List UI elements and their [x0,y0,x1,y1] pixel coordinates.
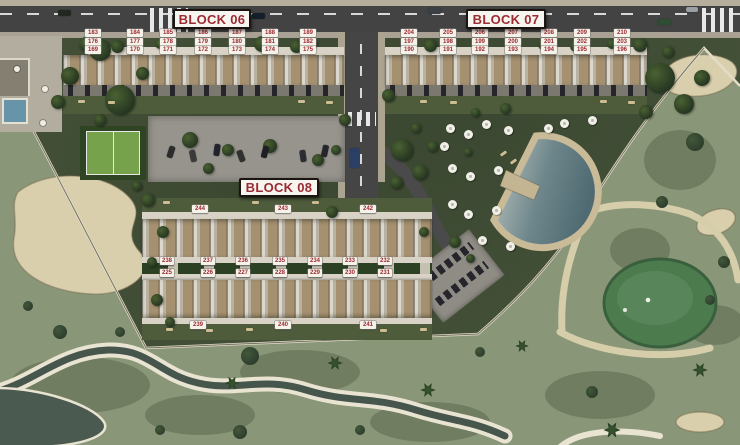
unit-label: 176 [85,38,101,46]
tree [147,257,157,267]
unit-label: 238 [160,257,174,265]
unit-label: 197 [401,38,417,46]
tree [222,144,234,156]
tree [475,347,485,357]
unit-label: 204 [401,29,417,37]
unit-label: 196 [614,46,630,54]
sun-lounger [628,101,635,104]
tree [105,85,135,115]
parasol [448,200,457,209]
tree [94,114,106,126]
parasol [448,164,457,173]
unit-label: 185 [160,29,176,37]
paddle-court-surface [86,131,140,175]
tree [412,164,428,180]
curb [378,32,740,38]
block08-houses-lower [142,280,432,318]
tree [586,386,598,398]
tree [390,176,403,189]
unit-label: 239 [190,321,206,329]
tree [464,148,472,156]
tree [411,123,421,133]
unit-label: 231 [378,269,392,277]
unit-label: 191 [440,46,456,54]
unit-label: 187 [229,29,245,37]
crosswalk [702,8,736,32]
block07-garden [385,96,647,114]
unit-label: 193 [505,46,521,54]
block08-houses-upper [142,219,432,257]
sun-lounger [163,201,170,204]
unit-label: 228 [273,269,287,277]
tree [449,236,461,248]
tree [157,226,169,238]
unit-label: 172 [195,46,211,54]
sun-lounger [78,100,85,103]
unit-label: 237 [201,257,215,265]
unit-label: 207 [505,29,521,37]
parasol [506,242,515,251]
unit-label: 170 [127,46,143,54]
parasol [440,142,449,151]
unit-label: 229 [308,269,322,277]
block07-driveway [385,85,647,96]
tree [132,181,142,191]
block07-houses [385,55,647,85]
tree [339,114,351,126]
unit-label: 202 [574,38,590,46]
unit-label: 178 [160,38,176,46]
unit-label: 210 [614,29,630,37]
unit-label: 184 [127,29,143,37]
parasol [464,210,473,219]
tree [233,425,247,439]
sun-lounger [420,328,427,331]
tree [203,163,214,174]
unit-label: 236 [236,257,250,265]
tree [382,89,395,102]
tree [471,108,480,117]
car [58,10,71,16]
unit-label: 189 [300,29,316,37]
table [14,66,20,72]
tree [53,325,67,339]
table [42,86,48,92]
tree [686,133,704,151]
unit-label: 241 [360,321,376,329]
sidewalk [378,32,385,182]
unit-label: 227 [236,269,250,277]
unit-label: 234 [308,257,322,265]
table [40,120,46,126]
road-markings [0,13,740,15]
unit-label: 244 [192,205,208,213]
unit-label: 203 [614,38,630,46]
tree [115,327,125,337]
unit-label: 201 [541,38,557,46]
block07-sign: BLOCK 07 [466,9,546,29]
sun-lounger [252,201,259,204]
clubhouse-building [0,58,30,96]
car [428,8,441,14]
unit-label: 173 [229,46,245,54]
unit-label: 177 [127,38,143,46]
unit-label: 206 [472,29,488,37]
unit-label: 195 [574,46,590,54]
unit-label: 199 [472,38,488,46]
tree [165,317,175,327]
parasol [446,124,455,133]
tree [61,67,79,85]
unit-label: 242 [360,205,376,213]
unit-label: 194 [541,46,557,54]
tree [633,38,647,52]
tree [639,105,653,119]
tree [694,70,710,86]
tree [662,46,674,58]
unit-label: 200 [505,38,521,46]
parking-plaza [148,116,345,182]
sun-lounger [312,201,319,204]
tree [419,227,429,237]
tree [111,40,124,53]
parasol [560,119,569,128]
tree [51,95,65,109]
unit-label: 192 [472,46,488,54]
sun-lounger [420,100,427,103]
unit-label: 232 [378,257,392,265]
tree [136,67,149,80]
sun-lounger [326,101,333,104]
tree [645,63,675,93]
parasol [544,124,553,133]
parasol [478,236,487,245]
sun-lounger [206,329,213,332]
unit-label: 230 [343,269,357,277]
unit-label: 190 [401,46,417,54]
sun-lounger [450,101,457,104]
tree [155,425,165,435]
site-plan: BLOCK 06 BLOCK 07 BLOCK 08 1831841851861… [0,0,740,445]
pool [494,136,598,248]
sun-lounger [166,328,173,331]
sun-lounger [108,101,115,104]
tree [151,294,163,306]
tree [656,196,668,208]
tree [500,103,511,114]
block08-walkway-top [142,212,432,219]
unit-label: 181 [262,38,278,46]
car [686,7,698,12]
unit-label: 188 [262,29,278,37]
unit-label: 205 [440,29,456,37]
tree [141,193,155,207]
unit-label: 183 [85,29,101,37]
parasol [588,116,597,125]
tree [331,145,341,155]
unit-label: 179 [195,38,211,46]
tree [241,347,259,365]
unit-label: 169 [85,46,101,54]
car [252,13,265,19]
paddle-court [80,126,146,180]
parasol [494,166,503,175]
unit-label: 233 [343,257,357,265]
parasol [466,172,475,181]
unit-label: 243 [275,205,291,213]
sun-lounger [380,329,387,332]
tree [427,141,438,152]
tree [705,295,715,305]
unit-label: 175 [300,46,316,54]
parasol [504,126,513,135]
sun-lounger [246,328,253,331]
tree [718,256,730,268]
unit-label: 180 [229,38,245,46]
tree [424,39,437,52]
unit-label: 171 [160,46,176,54]
car [658,19,671,25]
unit-label: 186 [195,29,211,37]
tree [23,301,33,311]
block06-sign: BLOCK 06 [173,9,251,29]
unit-label: 208 [541,29,557,37]
unit-label: 225 [160,269,174,277]
small-pool [2,98,28,124]
unit-label: 182 [300,38,316,46]
parasol [482,120,491,129]
parasol [464,130,473,139]
unit-label: 174 [262,46,278,54]
unit-label: 235 [273,257,287,265]
unit-label: 226 [201,269,215,277]
parasol [492,206,501,215]
tree [466,254,475,263]
tree [326,206,338,218]
car [350,148,359,168]
unit-label: 209 [574,29,590,37]
crosswalk [348,112,376,126]
sun-lounger [298,100,305,103]
tree [355,425,365,435]
unit-label: 240 [275,321,291,329]
unit-label: 198 [440,38,456,46]
sun-lounger [600,100,607,103]
court-net-line [113,132,114,174]
tree [391,139,413,161]
tree [182,132,198,148]
tree [674,94,694,114]
block08-sign: BLOCK 08 [239,178,319,197]
